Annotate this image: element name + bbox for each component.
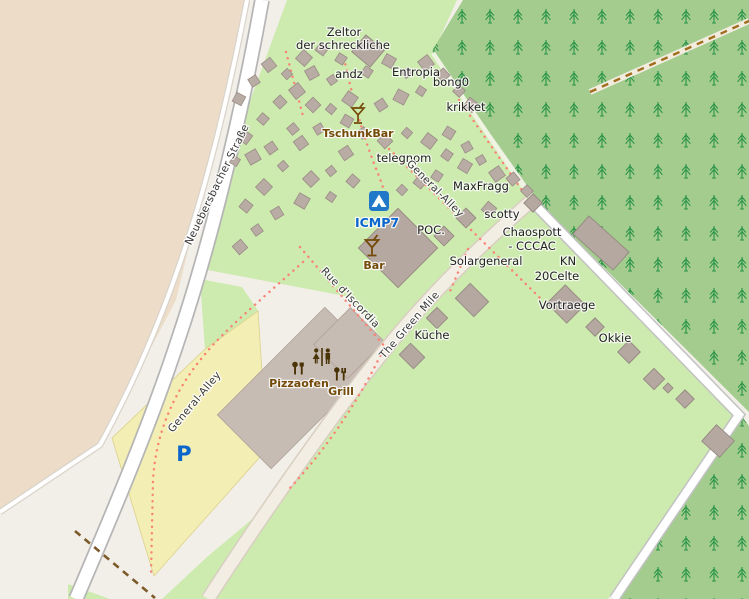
label-bar: Bar xyxy=(363,259,385,272)
label-krikket: krikket xyxy=(446,100,486,114)
label-tschunkbar: TschunkBar xyxy=(322,127,394,140)
campsite-icon xyxy=(369,191,389,211)
label-vortraege: Vortraege xyxy=(539,298,595,312)
label-telegnom: telegnom xyxy=(377,151,432,165)
label-kueche: Küche xyxy=(415,328,450,342)
label-poc: POC. xyxy=(417,223,445,237)
label-parking-p: P xyxy=(176,442,191,466)
label-zeltor-line1: Zeltor xyxy=(327,25,362,39)
label-cccac: - CCCAC xyxy=(508,239,556,253)
label-solargeneral: Solargeneral xyxy=(450,254,523,268)
label-kn: KN xyxy=(560,254,576,268)
label-20celte: 20Celte xyxy=(535,269,580,283)
map-canvas[interactable]: Zeltorder schrecklicheandzEntropiabong0k… xyxy=(0,0,749,599)
label-bong0: bong0 xyxy=(433,75,469,89)
label-chaospott: Chaospott xyxy=(503,225,562,239)
label-okkie: Okkie xyxy=(599,331,632,345)
label-icmp7: ICMP7 xyxy=(355,215,399,230)
label-andz: andz xyxy=(335,67,363,81)
label-maxfragg: MaxFragg xyxy=(453,179,509,193)
label-pizzaofen: Pizzaofen xyxy=(269,377,329,390)
label-scotty: scotty xyxy=(484,207,519,221)
label-zeltor-line2: der schreckliche xyxy=(296,38,390,52)
label-grill: Grill xyxy=(328,385,354,398)
